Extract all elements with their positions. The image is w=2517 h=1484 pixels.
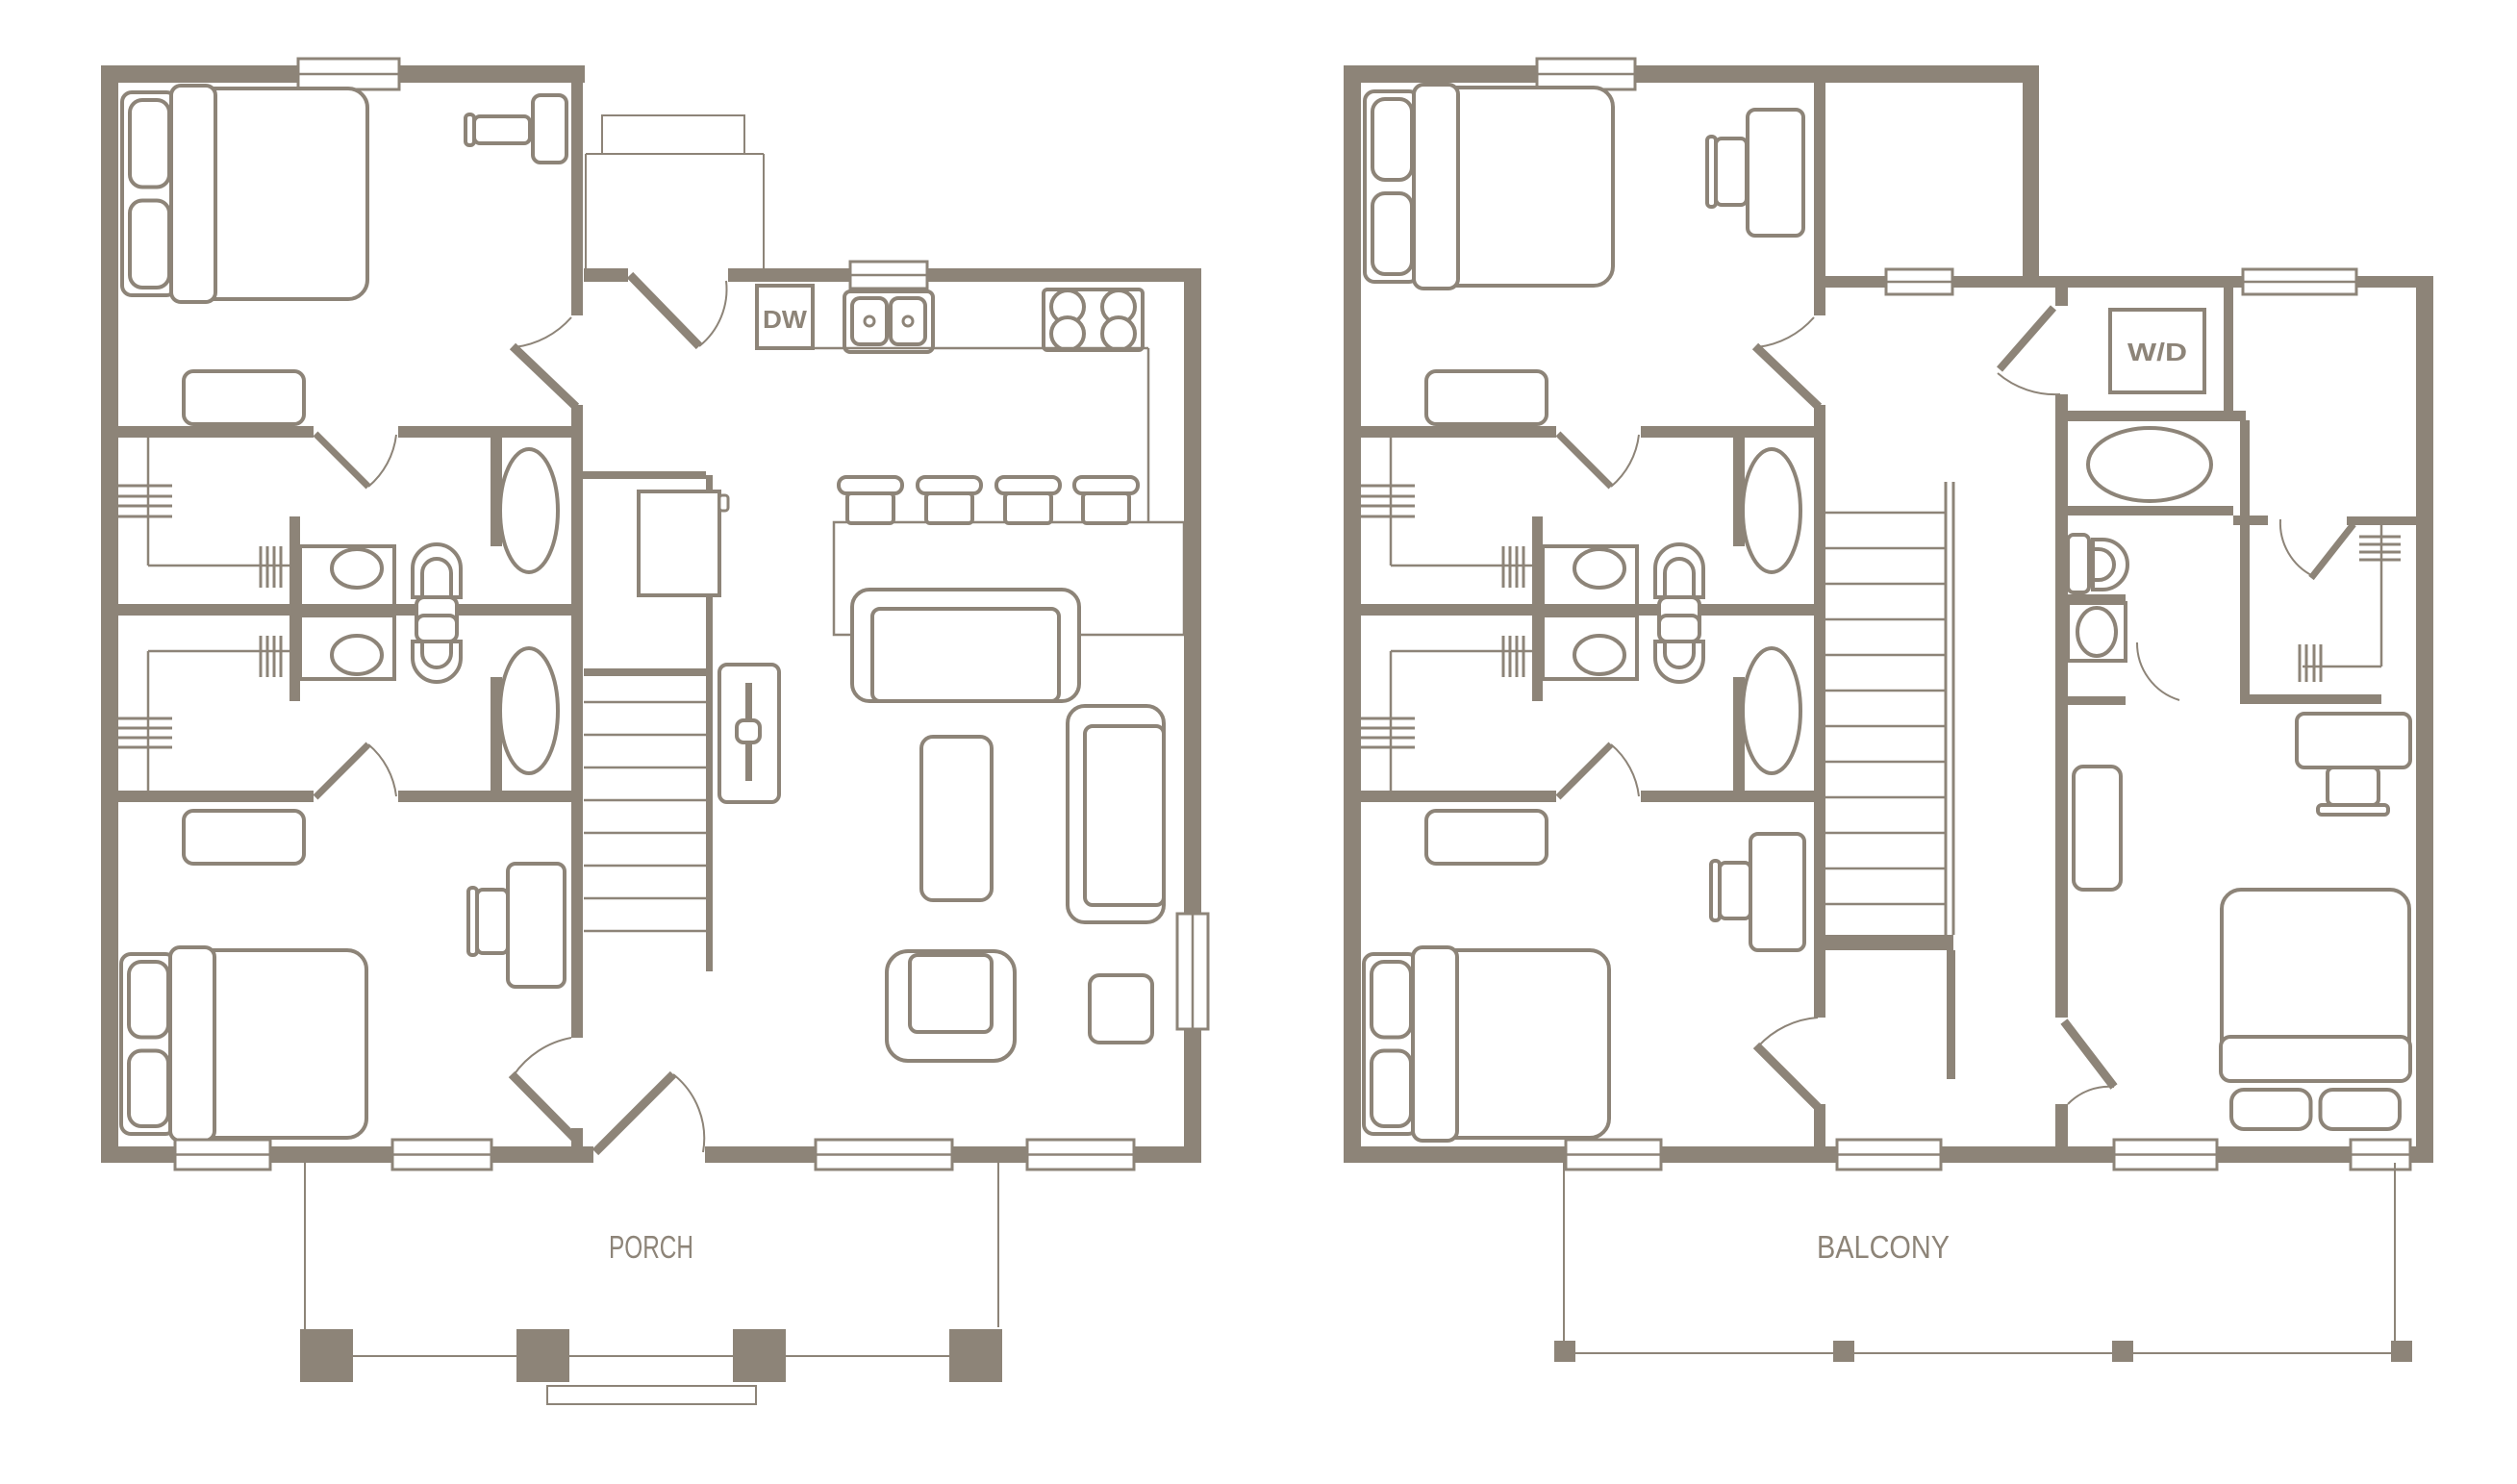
svg-text:PORCH: PORCH [609, 1229, 693, 1265]
svg-text:BALCONY: BALCONY [1817, 1229, 1950, 1265]
svg-text:DW: DW [763, 305, 807, 334]
svg-text:W/D: W/D [2127, 338, 2187, 366]
